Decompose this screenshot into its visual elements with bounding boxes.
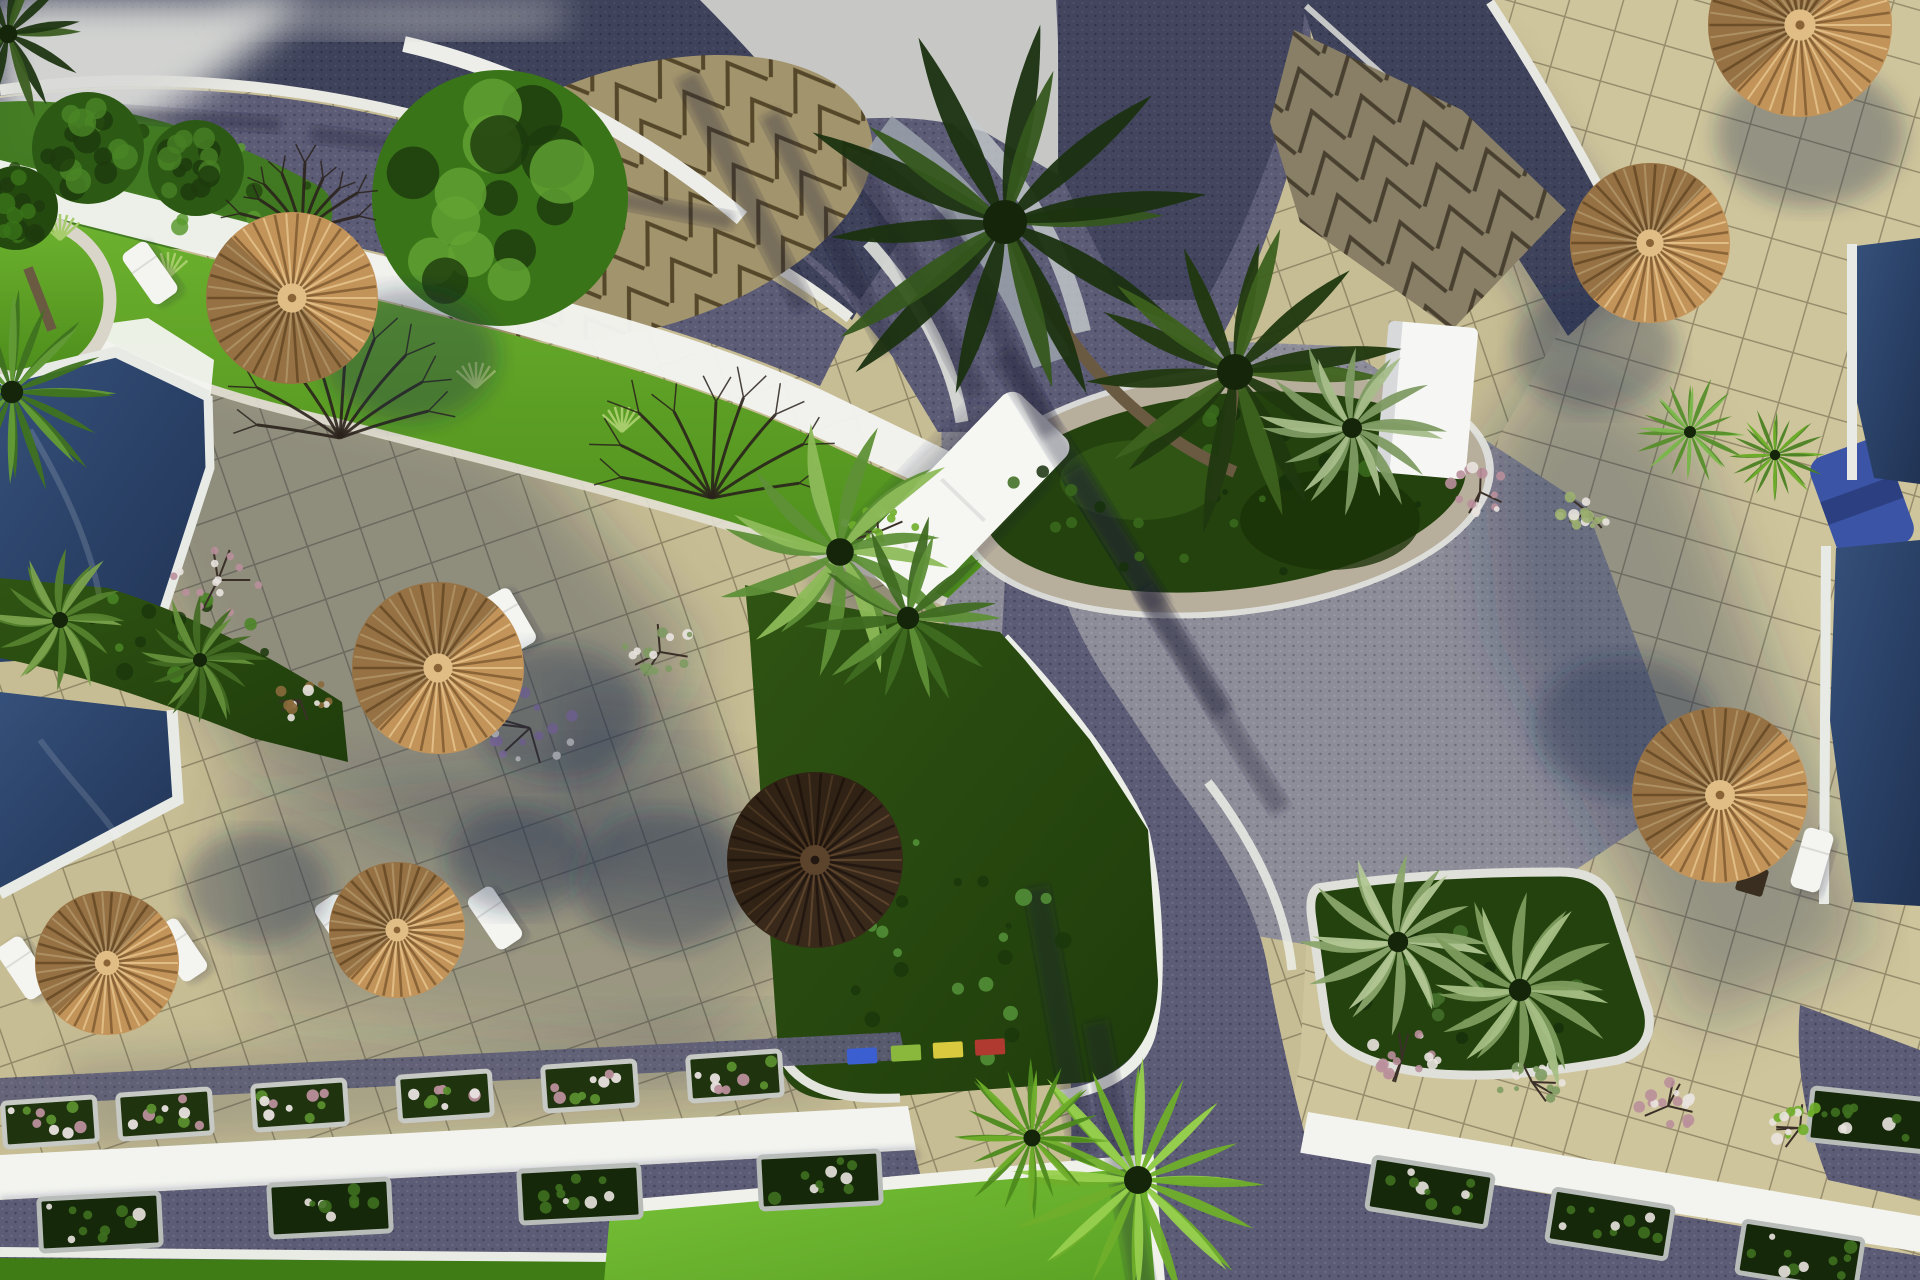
flower-planter [543, 1061, 638, 1111]
flower-planter [688, 1051, 783, 1101]
colored-marker [975, 1038, 1006, 1056]
bottom-lawn-curb [0, 1252, 618, 1258]
flower-planter [3, 1097, 98, 1147]
colored-marker [891, 1044, 922, 1062]
tree-canopy [372, 70, 628, 326]
resort-aerial-render [0, 0, 1920, 1280]
hedge-planter [519, 1165, 642, 1223]
hedge-planter [1808, 1088, 1920, 1152]
colored-marker [933, 1041, 964, 1059]
scene-canvas [0, 0, 1920, 1280]
flower-planter [118, 1089, 213, 1139]
hedge-planter [39, 1193, 162, 1251]
hedge-planter [759, 1151, 882, 1209]
flower-planter [398, 1071, 493, 1121]
hedge-planter [269, 1179, 392, 1237]
colored-marker [847, 1047, 878, 1065]
flower-planter [253, 1080, 348, 1130]
tree-canopy [148, 120, 244, 216]
